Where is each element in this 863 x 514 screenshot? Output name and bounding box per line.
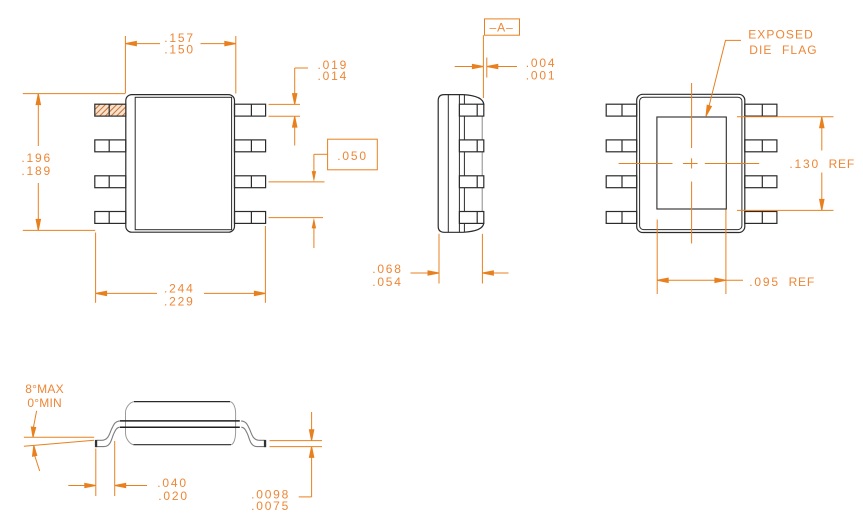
svg-text:.0075: .0075: [251, 499, 290, 513]
svg-text:.130: .130: [789, 157, 820, 171]
svg-text:.001: .001: [526, 68, 557, 82]
svg-text:–A–: –A–: [490, 21, 514, 35]
svg-text:REF: REF: [789, 275, 815, 289]
svg-text:.068: .068: [372, 262, 403, 276]
svg-text:.229: .229: [164, 294, 195, 308]
svg-text:.150: .150: [164, 42, 195, 56]
svg-text:REF: REF: [829, 157, 855, 171]
svg-text:.014: .014: [318, 69, 349, 83]
svg-text:8°MAX: 8°MAX: [25, 382, 63, 396]
svg-text:.050: .050: [337, 149, 368, 163]
svg-text:FLAG: FLAG: [782, 43, 818, 57]
svg-text:DIE: DIE: [749, 43, 772, 57]
svg-text:.189: .189: [21, 164, 52, 178]
svg-text:.054: .054: [372, 275, 403, 289]
svg-text:.095: .095: [749, 275, 780, 289]
svg-text:0°MIN: 0°MIN: [27, 396, 61, 410]
svg-text:.196: .196: [21, 151, 52, 165]
svg-text:.020: .020: [158, 489, 189, 503]
svg-text:EXPOSED: EXPOSED: [748, 28, 814, 42]
